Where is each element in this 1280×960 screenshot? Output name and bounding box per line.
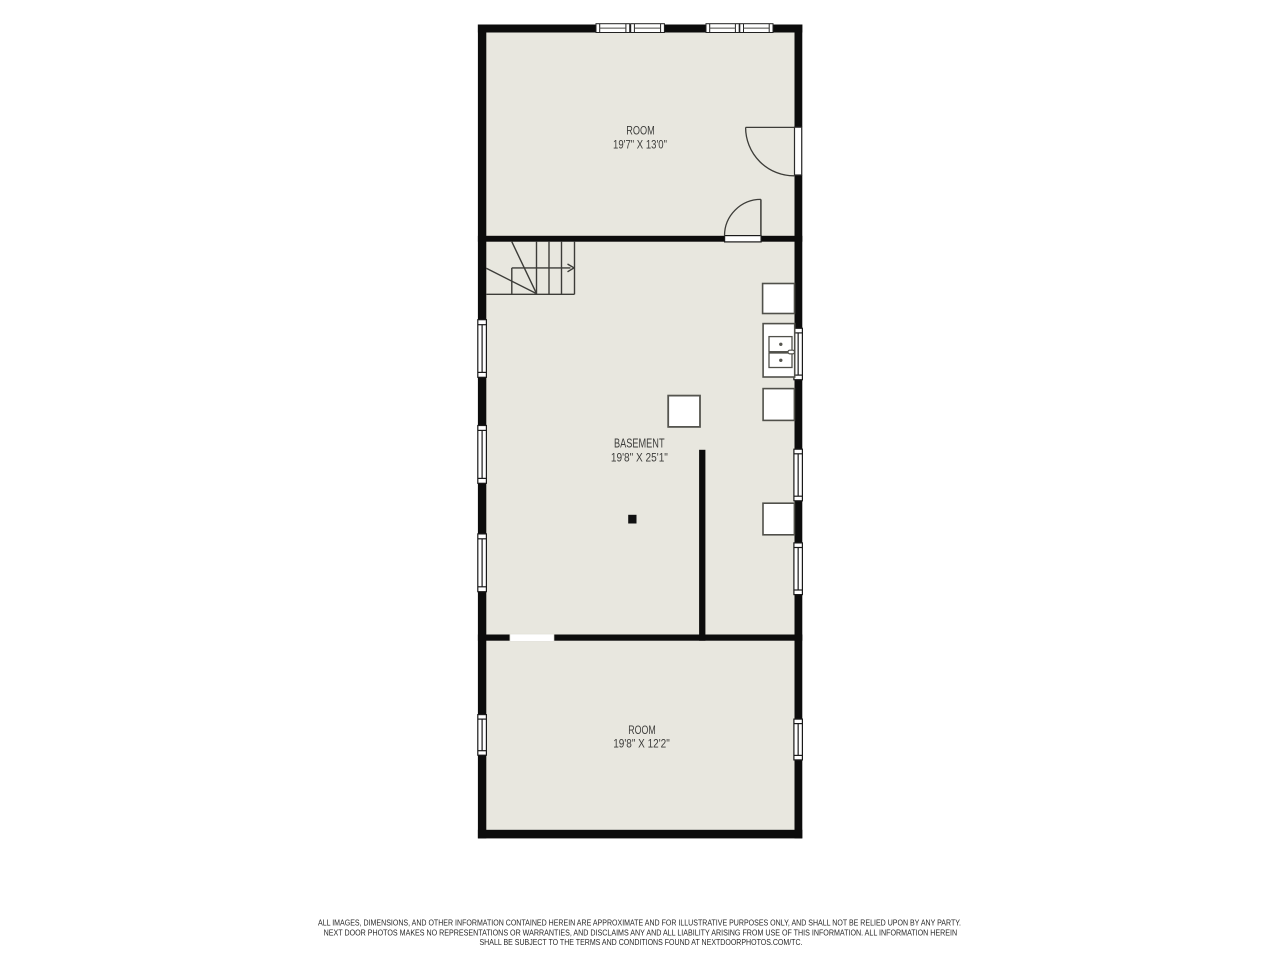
- svg-text:19'7" X 13'0": 19'7" X 13'0": [613, 138, 667, 152]
- svg-text:SHALL BE SUBJECT TO THE TERMS: SHALL BE SUBJECT TO THE TERMS AND CONDIT…: [480, 938, 803, 947]
- svg-text:BASEMENT: BASEMENT: [614, 437, 665, 451]
- svg-text:ALL IMAGES, DIMENSIONS, AND OT: ALL IMAGES, DIMENSIONS, AND OTHER INFORM…: [318, 918, 961, 927]
- svg-text:ROOM: ROOM: [628, 723, 656, 737]
- svg-text:19'8" X 12'2": 19'8" X 12'2": [613, 737, 670, 751]
- svg-text:ROOM: ROOM: [626, 123, 655, 137]
- svg-text:NEXT DOOR PHOTOS MAKES NO REPR: NEXT DOOR PHOTOS MAKES NO REPRESENTATION…: [324, 928, 958, 937]
- svg-text:19'8" X 25'1": 19'8" X 25'1": [611, 451, 668, 465]
